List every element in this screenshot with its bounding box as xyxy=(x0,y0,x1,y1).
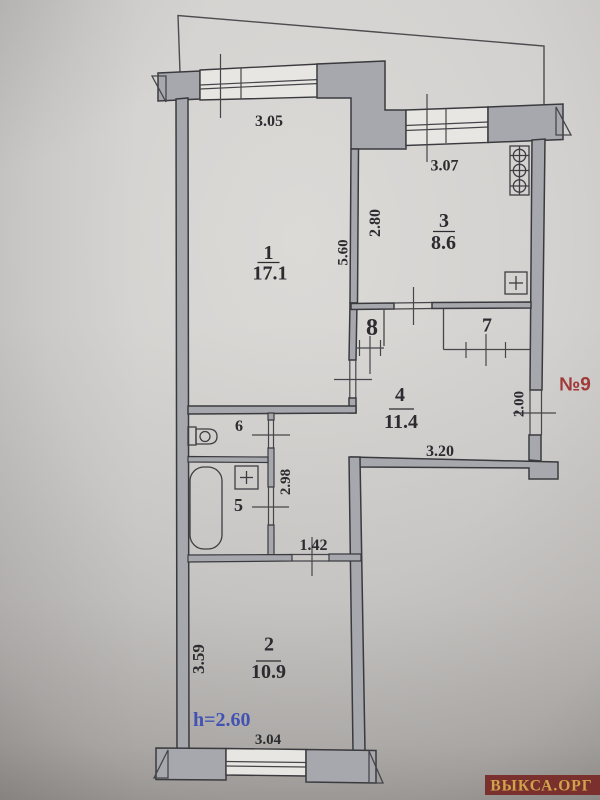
svg-text:3.07: 3.07 xyxy=(431,158,459,175)
svg-text:5: 5 xyxy=(234,495,243,515)
svg-text:3.04: 3.04 xyxy=(255,732,282,748)
svg-text:2: 2 xyxy=(264,634,274,656)
svg-text:8.6: 8.6 xyxy=(431,232,456,254)
svg-text:1: 1 xyxy=(264,242,274,264)
svg-text:11.4: 11.4 xyxy=(384,411,418,433)
svg-text:2.00: 2.00 xyxy=(512,391,528,417)
svg-text:17.1: 17.1 xyxy=(253,263,288,285)
svg-text:№9: №9 xyxy=(559,375,591,396)
svg-text:6: 6 xyxy=(235,418,243,435)
svg-text:3.05: 3.05 xyxy=(255,113,283,130)
svg-text:3: 3 xyxy=(439,210,449,232)
svg-text:10.9: 10.9 xyxy=(251,661,286,683)
svg-text:5.60: 5.60 xyxy=(336,239,352,265)
svg-text:8: 8 xyxy=(366,315,378,341)
svg-text:ВЫКСА.ОРГ: ВЫКСА.ОРГ xyxy=(490,778,592,795)
svg-text:4: 4 xyxy=(395,384,405,406)
svg-text:2.80: 2.80 xyxy=(367,209,384,237)
svg-text:h=2.60: h=2.60 xyxy=(193,709,251,731)
svg-text:3.59: 3.59 xyxy=(189,644,208,674)
svg-text:7: 7 xyxy=(482,315,492,337)
svg-text:3.20: 3.20 xyxy=(426,443,454,460)
svg-text:2.98: 2.98 xyxy=(278,469,294,495)
svg-text:1.42: 1.42 xyxy=(300,537,328,554)
